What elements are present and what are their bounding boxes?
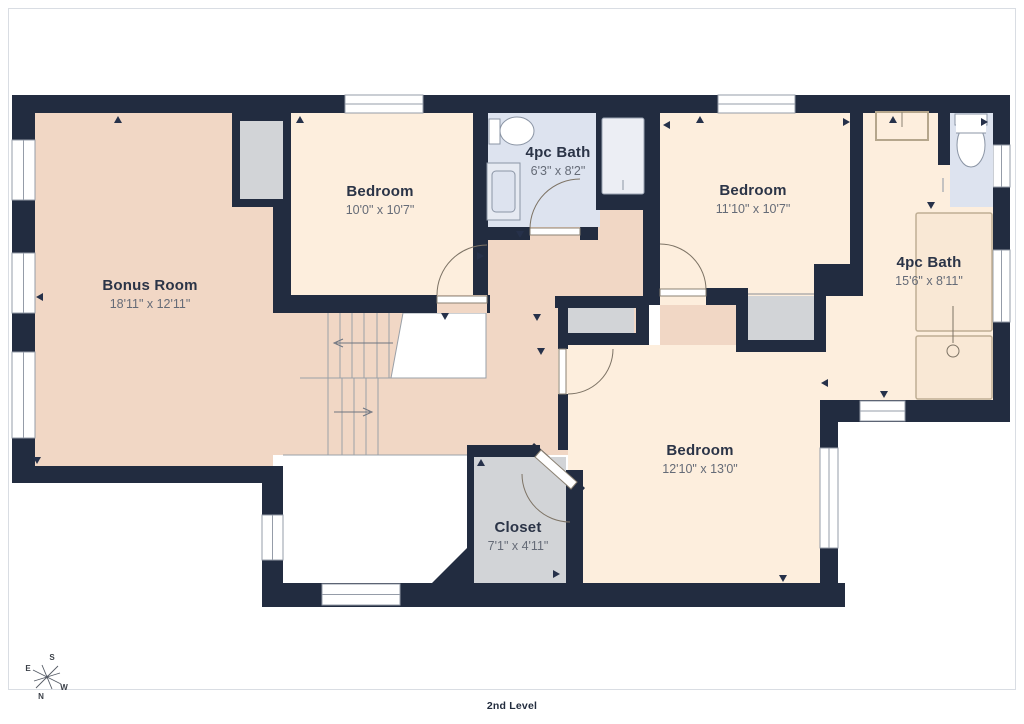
- bathtub-icon: [916, 213, 992, 331]
- compass-north-label: N: [38, 692, 44, 701]
- compass-south-label: S: [49, 653, 55, 662]
- floor-level-caption: 2nd Level: [487, 700, 537, 712]
- compass-rose-icon: S E W N: [25, 653, 68, 701]
- floor-plan-drawing: S E W N: [0, 0, 1024, 724]
- floor-plan-page: S E W N Bonus Room 18'11" x 12'11" Bedro…: [0, 0, 1024, 724]
- toilet-icon: [489, 119, 500, 144]
- compass-west-label: W: [60, 683, 68, 692]
- compass-east-label: E: [25, 664, 31, 673]
